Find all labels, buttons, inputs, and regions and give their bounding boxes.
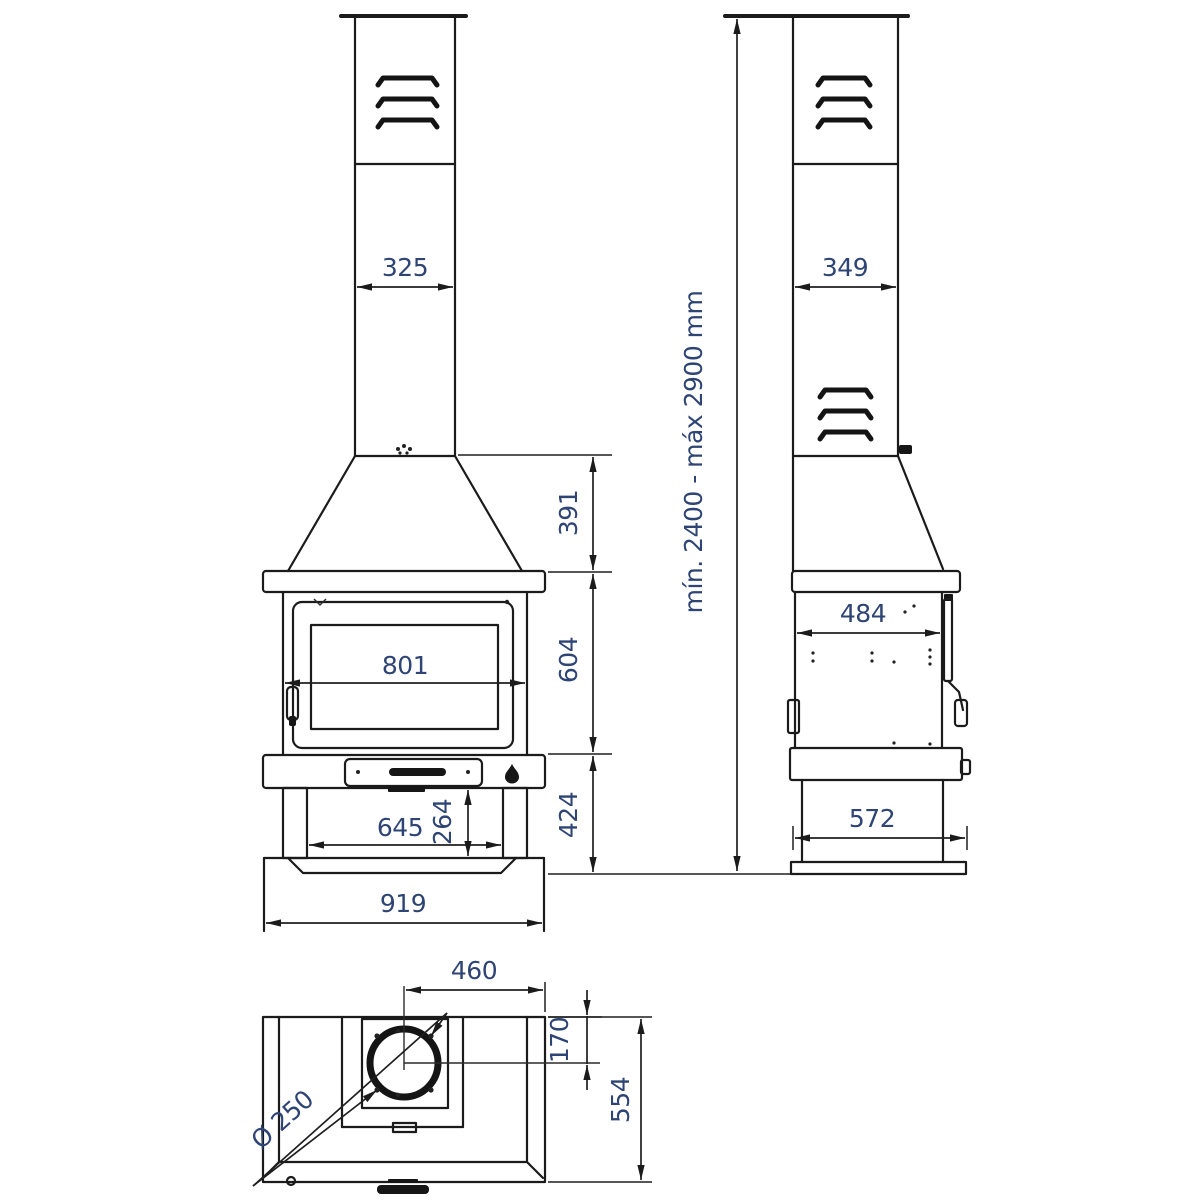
dim-flue-back-offset: 170 <box>545 990 602 1090</box>
dim-label-919: 919 <box>380 889 426 918</box>
dim-hood-height: 391 <box>554 457 593 570</box>
front-vent-louvers <box>378 78 437 127</box>
side-vent-louvers-upper <box>818 78 870 127</box>
dim-chimney-depth: 349 <box>795 253 896 287</box>
dim-label-460: 460 <box>451 956 497 985</box>
fireplace-technical-drawing: 325 801 <box>0 0 1200 1200</box>
front-view: 325 801 <box>263 16 791 931</box>
brand-emblem <box>396 444 412 455</box>
dim-base-depth: 572 <box>793 804 967 850</box>
dim-total-height: mín. 2400 - máx 2900 mm <box>679 19 737 871</box>
front-bottom-tab <box>388 786 425 792</box>
side-chimney-outline <box>725 16 908 571</box>
side-lower-shelf <box>790 748 970 780</box>
dim-label-264: 264 <box>428 799 457 845</box>
front-chimney-outline <box>341 16 466 456</box>
dim-label-801: 801 <box>382 651 428 680</box>
front-extension-lines <box>458 455 791 874</box>
wall-bracket <box>788 700 799 733</box>
dim-label-572: 572 <box>849 804 895 833</box>
top-view: Ø 250 460 170 554 <box>246 956 652 1194</box>
drawing-page: 325 801 <box>0 0 1200 1200</box>
dim-base-height: 424 <box>554 756 593 872</box>
side-mantel-shelf <box>792 571 960 592</box>
side-screw-dots <box>811 648 931 745</box>
side-vent-louvers-lower <box>820 390 871 439</box>
dim-label-height-range: mín. 2400 - máx 2900 mm <box>679 291 708 614</box>
side-door-handle <box>944 594 967 726</box>
front-hood <box>288 456 522 571</box>
side-plinth <box>791 862 966 874</box>
dim-label-170: 170 <box>545 1017 574 1063</box>
dim-inner-width: 645 <box>309 813 501 845</box>
dim-total-width: 919 <box>266 889 542 923</box>
dim-leg-space-height: 264 <box>428 790 468 856</box>
dim-flue-offset: 460 <box>406 956 545 1012</box>
dim-flue-diameter: Ø 250 <box>246 1013 447 1186</box>
front-mantel-shelf <box>263 571 545 592</box>
dim-body-depth: 484 <box>797 599 940 633</box>
dim-chimney-width: 325 <box>357 253 453 287</box>
hood-bracket <box>899 445 912 454</box>
dim-door-width: 801 <box>285 651 525 683</box>
side-view: 349 484 <box>679 16 970 874</box>
dim-label-484: 484 <box>840 599 886 628</box>
dim-label-604: 604 <box>554 637 583 683</box>
dim-label-645: 645 <box>377 813 423 842</box>
brand-mark <box>505 764 519 784</box>
side-hood <box>898 445 943 569</box>
dim-firebox-height: 604 <box>554 574 593 752</box>
ash-drawer <box>345 759 482 786</box>
dim-label-391: 391 <box>554 490 583 536</box>
dim-label-424: 424 <box>554 792 583 838</box>
dim-label-349: 349 <box>822 253 868 282</box>
top-firebox-outline <box>342 1017 463 1132</box>
dim-label-554: 554 <box>606 1077 635 1123</box>
dim-label-325: 325 <box>382 253 428 282</box>
